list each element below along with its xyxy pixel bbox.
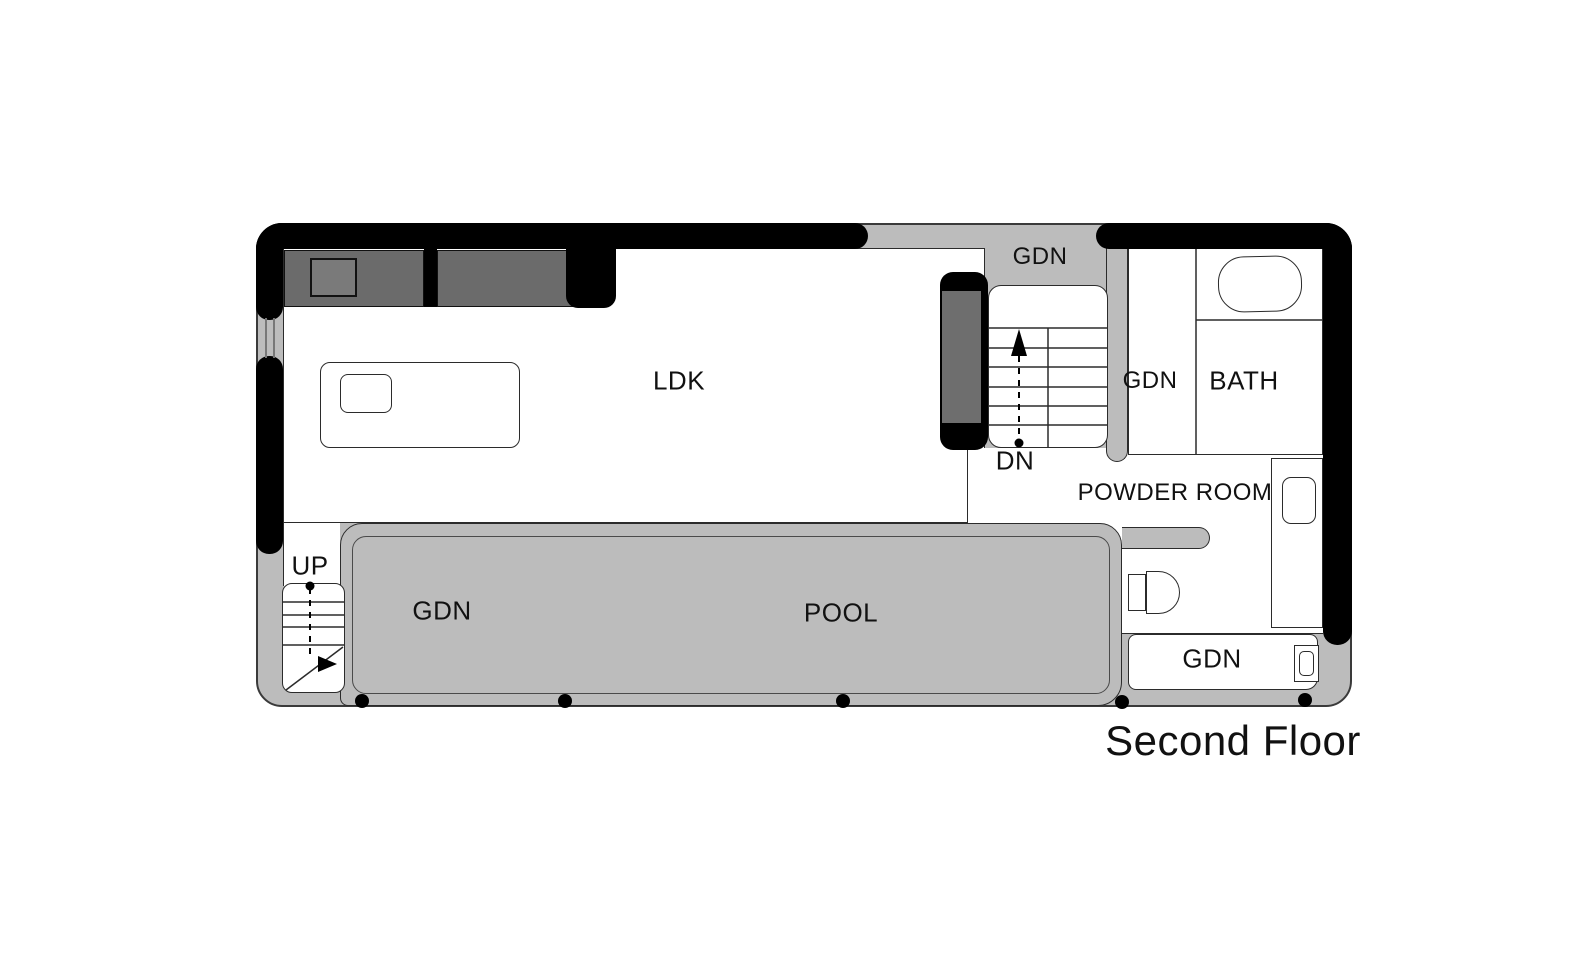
label-powder-room: POWDER ROOM [1078,479,1273,507]
toilet-tank [1128,574,1146,611]
garden-strip [1106,238,1128,462]
label-dn: DN [996,446,1035,477]
stair-partition-core [942,291,981,423]
label-gdn-mid: GDN [1123,367,1178,395]
label-pool: POOL [804,598,878,629]
label-gdn-top: GDN [1013,243,1068,271]
label-gdn-bottom: GDN [1182,644,1241,675]
kitchen-sink [310,258,357,297]
wall-kitchen-stub [566,240,616,308]
bathtub [1217,255,1302,313]
stairs-down [988,285,1108,448]
kitchen-counter-right [437,250,576,307]
label-bath: BATH [1209,366,1278,397]
floor-plan: LDK GDN GDN BATH DN POWDER ROOM UP GDN P… [0,0,1582,971]
label-gdn-deck: GDN [412,596,471,627]
wall-top-right [1096,223,1352,249]
kitchen-island-sink [340,374,392,413]
toilet-partition-wall [1122,527,1210,549]
wall-left-upper [256,223,283,320]
kitchen-counter-divider [424,248,437,307]
wall-top-left [256,223,868,249]
stairs-up [282,583,345,693]
floor-title: Second Floor [1105,717,1361,765]
wall-right [1323,223,1352,645]
vanity-sink [1282,477,1316,524]
wall-left-lower [256,356,283,554]
label-up: UP [291,551,328,582]
garden-fixture-inner [1299,651,1314,676]
label-ldk: LDK [653,366,705,397]
